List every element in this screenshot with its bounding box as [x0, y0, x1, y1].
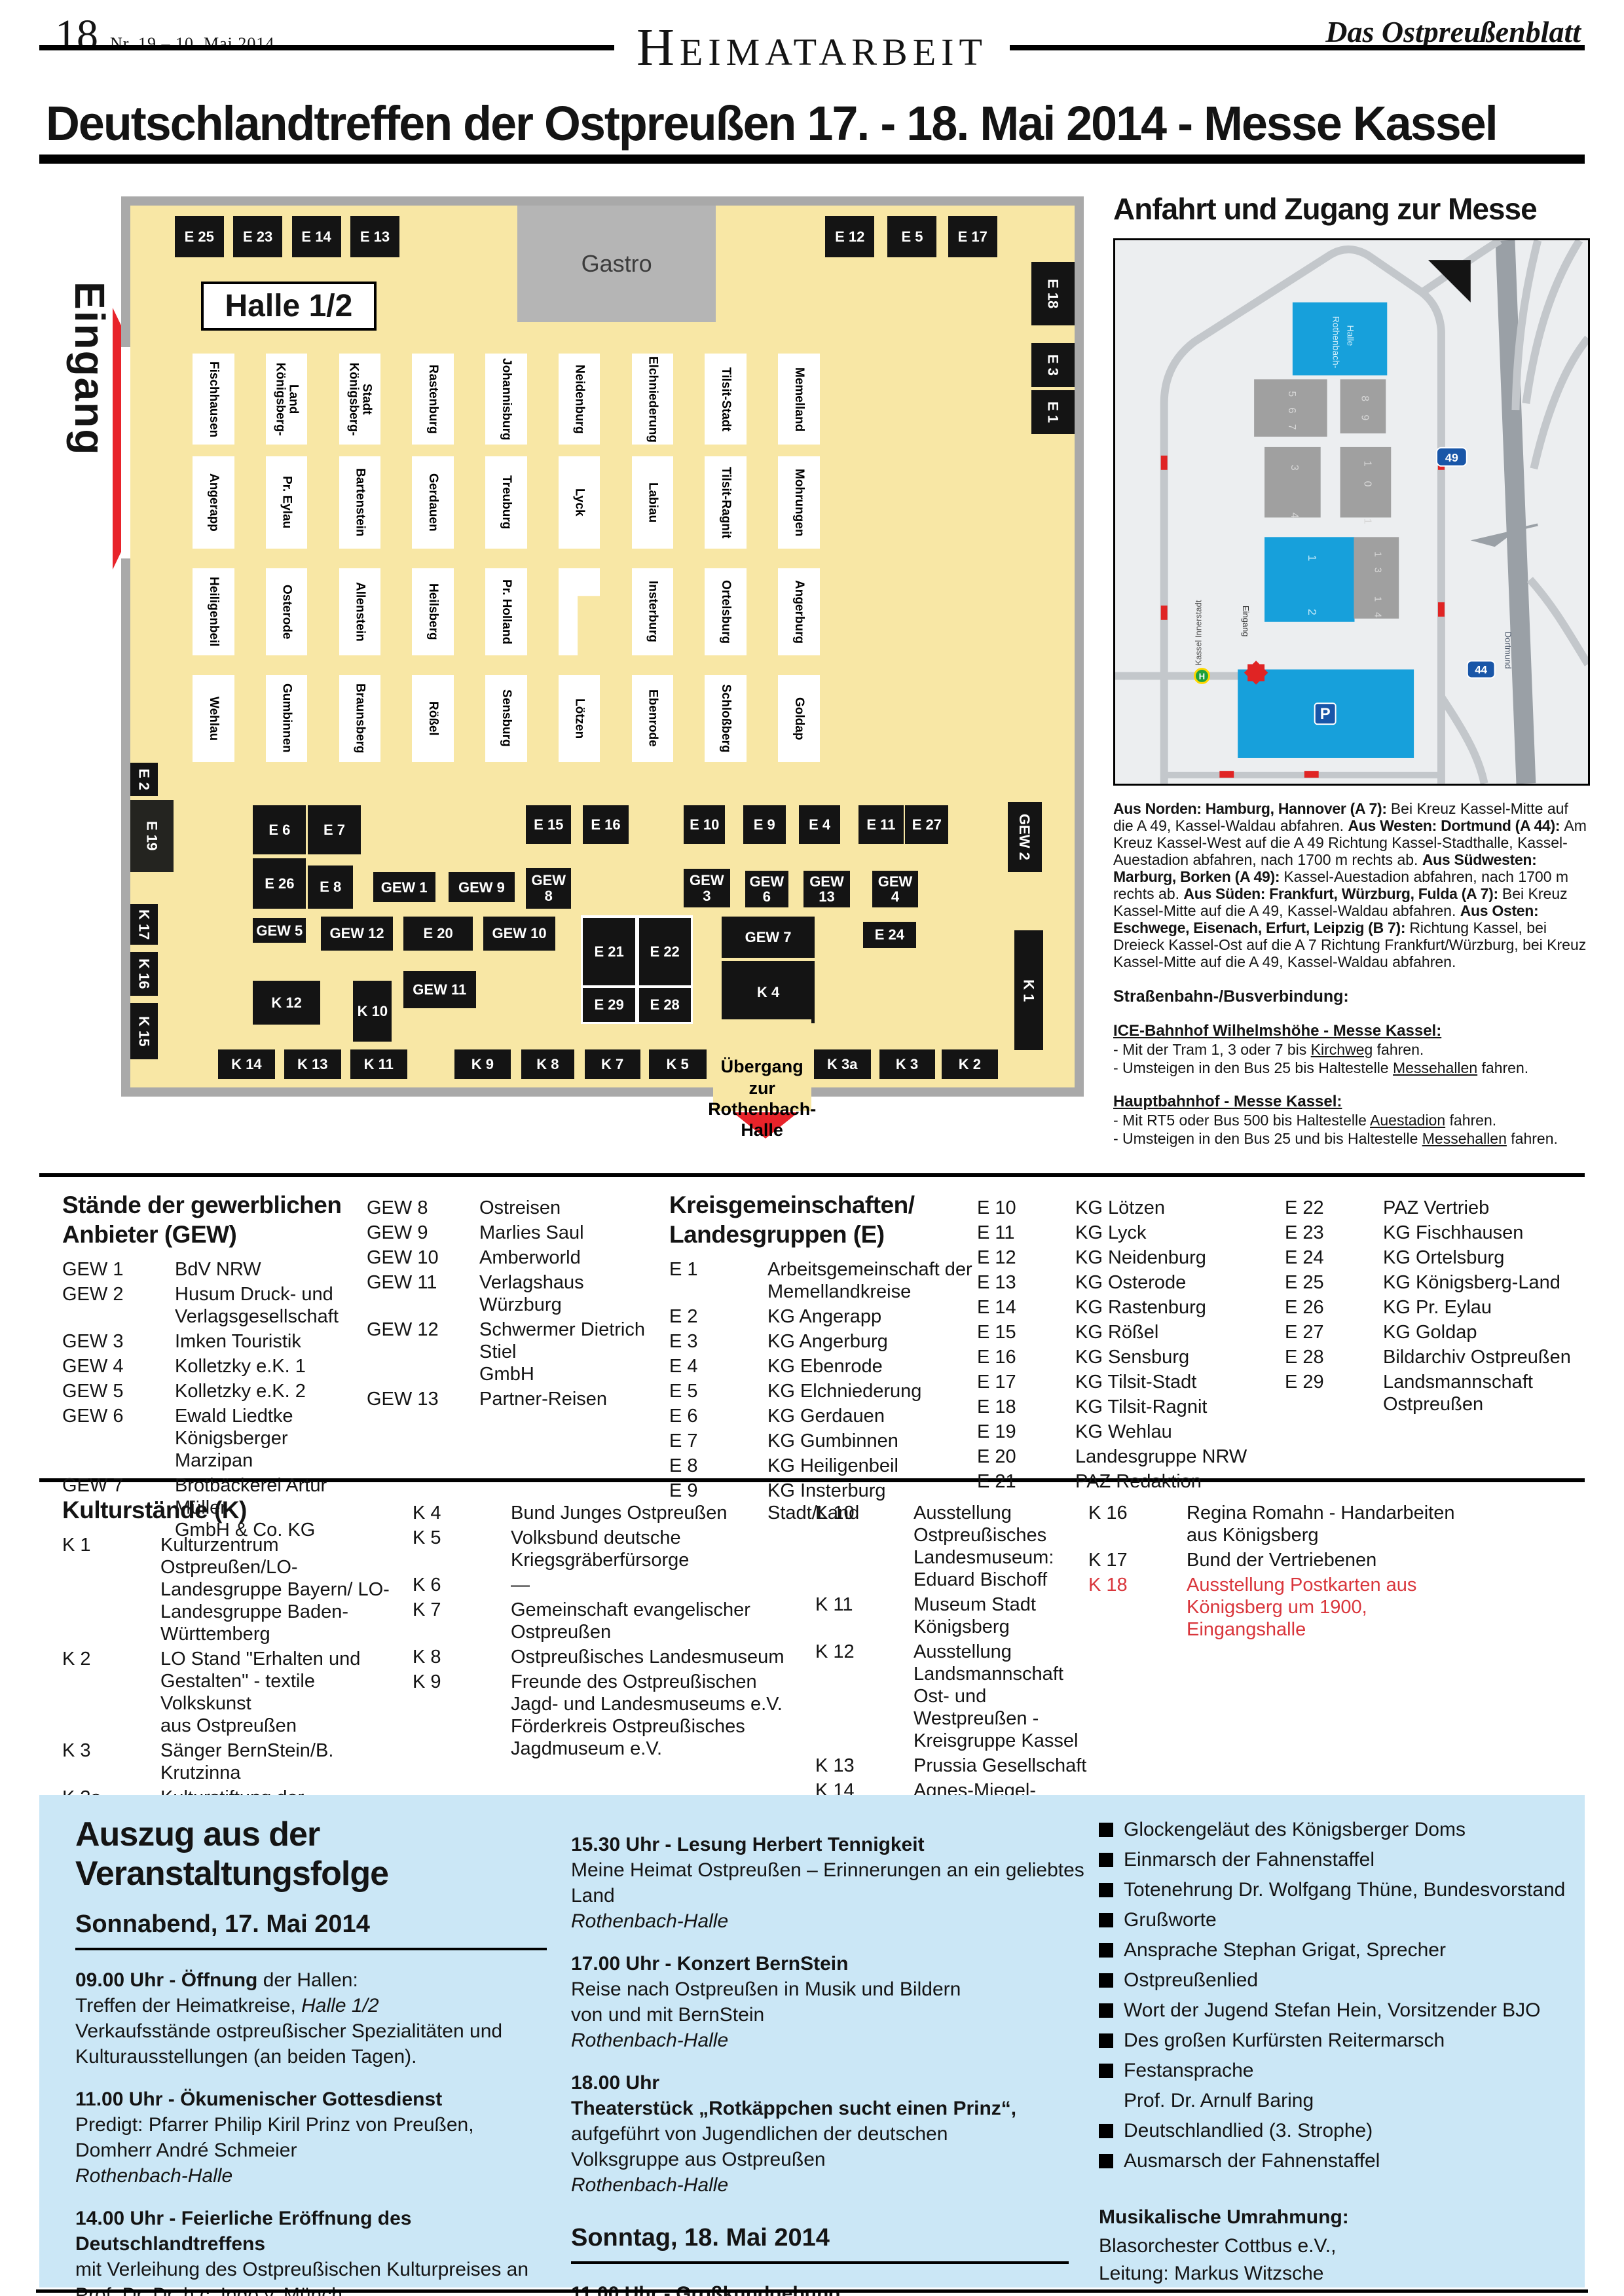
- stand-list-item: E 3KG Angerburg: [669, 1330, 977, 1353]
- program-entry-line: Predigt: Pfarrer Philip Kiril Prinz von …: [75, 2112, 560, 2138]
- program-entry-line: Reise nach Ostpreußen in Musik und Bilde…: [571, 1977, 1088, 2002]
- musical-title: Musikalische Umrahmung:: [1099, 2202, 1570, 2232]
- bullet-text: Festansprache: [1124, 2056, 1253, 2086]
- stand-list-item: E 19KG Wehlau: [977, 1421, 1278, 1443]
- program-entry-line: Rothenbach-Halle: [571, 1908, 1088, 1934]
- stand-code: E 3: [669, 1330, 767, 1353]
- bullet-text: Ansprache Stephan Grigat, Sprecher: [1124, 1935, 1446, 1965]
- map-hall-89-label: 8 9: [1359, 395, 1370, 426]
- stand-name: Imken Touristik: [175, 1330, 301, 1353]
- stand-code: E 20: [977, 1446, 1075, 1468]
- program-title: Auszug aus der Veranstaltungsfolge: [75, 1815, 560, 1893]
- stand-code: E 15: [977, 1321, 1075, 1343]
- map-hall-567-label: 5 6 7: [1286, 391, 1297, 433]
- program-col2: 15.30 Uhr - Lesung Herbert TennigkeitMei…: [571, 1815, 1088, 2296]
- stand-code: E 17: [977, 1371, 1075, 1393]
- district-memelland: Memelland: [778, 354, 819, 445]
- stand-name: KG Ebenrode: [767, 1355, 883, 1377]
- stand-code: GEW 9: [367, 1222, 479, 1244]
- bullet-text: Ostpreußenlied: [1124, 1965, 1258, 1995]
- stand-code: E 16: [977, 1346, 1075, 1368]
- district-heiligenbeil: Heiligenbeil: [193, 568, 234, 655]
- bullet-square-icon: [1099, 1943, 1113, 1958]
- stand-e-28: E 28: [639, 988, 691, 1021]
- district-rößel: Rößel: [412, 675, 453, 762]
- program-bullet: Grußworte: [1099, 1905, 1570, 1935]
- stand-name: Arbeitsgemeinschaft der Memellandkreise: [767, 1258, 972, 1303]
- stand-e-1: E 1: [1031, 390, 1075, 434]
- stand-list-item: GEW 1BdV NRW: [62, 1258, 363, 1281]
- district-pr-eylau: Pr. Eylau: [266, 456, 307, 549]
- stand-name: KG Goldap: [1383, 1321, 1477, 1343]
- map-column: Anfahrt und Zugang zur Messe: [1113, 191, 1590, 1148]
- stand-name: Bund Junges Ostpreußen: [511, 1502, 727, 1524]
- footer-rule: [36, 2289, 1588, 2293]
- musical-line: Leitung: Markus Witzsche: [1099, 2260, 1570, 2287]
- stand-list-item: E 4KG Ebenrode: [669, 1355, 977, 1377]
- district-ortelsburg: Ortelsburg: [705, 568, 746, 655]
- stand-name: Partner-Reisen: [479, 1388, 607, 1410]
- stand-list-item: GEW 4Kolletzky e.K. 1: [62, 1355, 363, 1377]
- district-bartenstein: Bartenstein: [339, 456, 380, 549]
- stand-code: E 12: [977, 1247, 1075, 1269]
- stand-gew-3: GEW 3: [684, 869, 730, 907]
- stand-list-item: E 5KG Elchniederung: [669, 1380, 977, 1402]
- stand-k-9: K 9: [454, 1049, 511, 1078]
- program-entry: 09.00 Uhr - Öffnung der Hallen:Treffen d…: [75, 1967, 560, 2069]
- stand-list-item: GEW 12Schwermer Dietrich Stiel GmbH: [367, 1319, 661, 1385]
- header-rule-left: [39, 45, 614, 50]
- stand-list-item: K 11Museum Stadt Königsberg: [815, 1594, 1090, 1638]
- stand-name: —: [511, 1574, 530, 1596]
- bullet-text: Einmarsch der Fahnenstaffel: [1124, 1845, 1375, 1875]
- stand-gew-4: GEW 4: [872, 871, 917, 908]
- district-pr-holland: Pr. Holland: [485, 568, 526, 655]
- stand-k-12: K 12: [253, 981, 320, 1025]
- program-entry-line: mit Verleihung des Ostpreußischen Kultur…: [75, 2257, 560, 2282]
- program-day2: Sonntag, 18. Mai 2014: [571, 2224, 1088, 2252]
- gew-list-col2: GEW 8OstreisenGEW 9Marlies SaulGEW 10Amb…: [367, 1197, 661, 1413]
- stand-list-item: E 17KG Tilsit-Stadt: [977, 1371, 1278, 1393]
- program-entry-line: von und mit BernStein: [571, 2002, 1088, 2028]
- program-entry-line: 09.00 Uhr - Öffnung der Hallen:: [75, 1967, 560, 1993]
- stand-code: K 5: [413, 1527, 511, 1571]
- stand-name: Ewald Liedtke Königsberger Marzipan: [175, 1405, 363, 1472]
- program-day1-rule: [75, 1948, 547, 1950]
- stand-gew-5: GEW 5: [253, 918, 306, 943]
- district-rastenburg: Rastenburg: [412, 354, 453, 445]
- stand-list-item: K 17Bund der Vertriebenen: [1088, 1549, 1455, 1571]
- stand-list-item: E 11KG Lyck: [977, 1222, 1278, 1244]
- unlabeled-area: [559, 568, 600, 655]
- entrance-label: Eingang: [65, 282, 114, 622]
- program-bullet: Wort der Jugend Stefan Hein, Vorsitzende…: [1099, 1995, 1570, 2026]
- program-entry-line: Rothenbach-Halle: [571, 2172, 1088, 2198]
- district-osterode: Osterode: [266, 568, 307, 655]
- stand-name: KG Lyck: [1075, 1222, 1147, 1244]
- bullet-text: Ausmarsch der Fahnenstaffel: [1124, 2146, 1380, 2176]
- stand-k-1: K 1: [1014, 930, 1044, 1050]
- map-a49-label: 49: [1445, 451, 1458, 464]
- stand-list-item: K 6—: [413, 1574, 786, 1596]
- header-rule-right: [1010, 45, 1585, 50]
- district-wehlau: Wehlau: [193, 675, 234, 762]
- stand-list-item: K 8Ostpreußisches Landesmuseum: [413, 1646, 786, 1668]
- district-allenstein: Allenstein: [339, 568, 380, 655]
- stand-code: K 1: [62, 1534, 160, 1645]
- stand-list-item: E 14KG Rastenburg: [977, 1296, 1278, 1319]
- district-elchniederung: Elchniederung: [632, 354, 673, 445]
- stand-name: KG Osterode: [1075, 1271, 1186, 1294]
- stand-gew-6: GEW 6: [745, 871, 788, 908]
- stand-name: Bildarchiv Ostpreußen: [1383, 1346, 1571, 1368]
- title-rule: [39, 155, 1585, 164]
- bullet-text: Deutschlandlied (3. Strophe): [1124, 2116, 1373, 2146]
- k-list-title: Kulturstände (K): [62, 1495, 390, 1525]
- stand-list-item: K 16Regina Romahn - Handarbeiten aus Kön…: [1088, 1502, 1455, 1546]
- bullet-square-icon: [1099, 2124, 1113, 2138]
- program-col1: Auszug aus der Veranstaltungsfolge Sonna…: [75, 1815, 560, 2296]
- musical-line: Blasorchester Cottbus e.V.,: [1099, 2232, 1570, 2260]
- stand-code: K 17: [1088, 1549, 1187, 1571]
- stand-name: LO Stand "Erhalten und Gestalten" - text…: [160, 1648, 390, 1737]
- stand-e-7: E 7: [308, 805, 361, 854]
- program-entry: 11.00 Uhr - Ökumenischer GottesdienstPre…: [75, 2086, 560, 2189]
- district-angerburg: Angerburg: [778, 568, 819, 655]
- stand-list-item: E 18KG Tilsit-Ragnit: [977, 1396, 1278, 1418]
- stand-name: KG Fischhausen: [1383, 1222, 1523, 1244]
- district-lyck: Lyck: [559, 456, 600, 549]
- stand-code: K 9: [413, 1671, 511, 1760]
- stand-gew-12: GEW 12: [321, 917, 393, 951]
- stand-k-10: K 10: [353, 981, 392, 1042]
- stand-name: KG Neidenburg: [1075, 1247, 1206, 1269]
- stand-name: Marlies Saul: [479, 1222, 584, 1244]
- stand-code: GEW 8: [367, 1197, 479, 1219]
- stand-name: KG Gerdauen: [767, 1405, 885, 1427]
- stand-k-8: K 8: [521, 1049, 574, 1078]
- stand-name: KG Tilsit-Stadt: [1075, 1371, 1196, 1393]
- stand-code: K 6: [413, 1574, 511, 1596]
- stand-e-5: E 5: [887, 216, 936, 257]
- program-entry-line: 11.00 Uhr - Großkundgebung: [571, 2281, 1088, 2296]
- stand-code: GEW 1: [62, 1258, 175, 1281]
- district-goldap: Goldap: [778, 675, 819, 762]
- district-neidenburg: Neidenburg: [559, 354, 600, 445]
- program-entry-line: Kulturausstellungen (an beiden Tagen).: [75, 2044, 560, 2069]
- transit-line: - Mit der Tram 1, 3 oder 7 bis Kirchweg …: [1113, 1040, 1590, 1059]
- stand-name: PAZ Vertrieb: [1383, 1197, 1489, 1219]
- transit-blocks: ICE-Bahnhof Wilhelmshöhe - Messe Kassel:…: [1113, 1006, 1590, 1148]
- stand-list-item: E 1Arbeitsgemeinschaft der Memellandkrei…: [669, 1258, 977, 1303]
- stand-e-13: E 13: [350, 216, 399, 257]
- k-items-col2: K 4Bund Junges OstpreußenK 5Volksbund de…: [413, 1502, 786, 1760]
- stand-list-item: GEW 10Amberworld: [367, 1247, 661, 1269]
- stand-e-2: E 2: [130, 763, 158, 796]
- stand-code: E 27: [1285, 1321, 1383, 1343]
- program-entry-line: Theaterstück „Rotkäppchen sucht einen Pr…: [571, 2096, 1088, 2121]
- stand-e-19: E 19: [130, 800, 174, 872]
- stand-k-4: K 4: [722, 961, 815, 1023]
- stand-k-16: K 16: [130, 952, 158, 996]
- district-lötzen: Lötzen: [559, 675, 600, 762]
- stand-name: Kulturzentrum Ostpreußen/LO- Landesgrupp…: [160, 1534, 390, 1645]
- stand-name: Bund der Vertriebenen: [1187, 1549, 1376, 1571]
- stand-name: KG Wehlau: [1075, 1421, 1172, 1443]
- program-col3: Glockengeläut des Königsberger DomsEinma…: [1099, 1815, 1570, 2287]
- stand-code: E 13: [977, 1271, 1075, 1294]
- stand-k-7: K 7: [585, 1049, 640, 1078]
- section-title: Heimatarbeit: [614, 22, 1010, 74]
- stand-code: GEW 3: [62, 1330, 175, 1353]
- transit-line: - Mit RT5 oder Bus 500 bis Haltestelle A…: [1113, 1111, 1590, 1129]
- program-bullet: Ansprache Stephan Grigat, Sprecher: [1099, 1935, 1570, 1965]
- map-bus-stop-label: H: [1199, 671, 1205, 681]
- stand-code: K 4: [413, 1502, 511, 1524]
- stand-code: K 18: [1088, 1574, 1187, 1641]
- stand-e-24: E 24: [863, 922, 916, 948]
- map-innerstadt-label: Kassel Innerstadt: [1193, 600, 1203, 665]
- stand-k-3a: K 3a: [814, 1049, 871, 1078]
- stand-name: KG Rößel: [1075, 1321, 1158, 1343]
- stand-list-item: GEW 3Imken Touristik: [62, 1330, 363, 1353]
- program-bullet: Einmarsch der Fahnenstaffel: [1099, 1845, 1570, 1875]
- bullet-square-icon: [1099, 2154, 1113, 2168]
- program-entry-line: Rothenbach-Halle: [75, 2163, 560, 2189]
- bullet-subtext: Prof. Dr. Arnulf Baring: [1099, 2086, 1570, 2116]
- stand-list-item: E 23KG Fischhausen: [1285, 1222, 1593, 1244]
- stand-code: K 7: [413, 1599, 511, 1643]
- stand-name: KG Elchniederung: [767, 1380, 921, 1402]
- program-bullet: Des großen Kurfürsten Reitermarsch: [1099, 2026, 1570, 2056]
- header-rule: Heimatarbeit: [39, 26, 1585, 69]
- program-day1-entries: 09.00 Uhr - Öffnung der Hallen:Treffen d…: [75, 1967, 560, 2296]
- program-entry-line: 15.30 Uhr - Lesung Herbert Tennigkeit: [571, 1832, 1088, 1857]
- district-ebenrode: Ebenrode: [632, 675, 673, 762]
- stand-name: Kolletzky e.K. 2: [175, 1380, 306, 1402]
- program-col2-entries: 15.30 Uhr - Lesung Herbert TennigkeitMei…: [571, 1832, 1088, 2198]
- stand-list-item: K 5Volksbund deutsche Kriegsgräberfürsor…: [413, 1527, 786, 1571]
- stand-e-11: E 11: [858, 805, 904, 844]
- bullet-text: Totenehrung Dr. Wolfgang Thüne, Bundesvo…: [1124, 1875, 1565, 1905]
- bullet-square-icon: [1099, 1853, 1113, 1867]
- district-treuburg: Treuburg: [485, 456, 526, 549]
- bullet-text: Wort der Jugend Stefan Hein, Vorsitzende…: [1124, 1995, 1540, 2026]
- stand-name: KG Ortelsburg: [1383, 1247, 1504, 1269]
- stand-code: E 24: [1285, 1247, 1383, 1269]
- stand-gew-8: GEW 8: [526, 868, 571, 909]
- transit-heading: Straßenbahn-/Busverbindung:: [1113, 987, 1590, 1006]
- stand-list-item: E 22PAZ Vertrieb: [1285, 1197, 1593, 1219]
- map-eingang-star-icon: [1244, 661, 1268, 685]
- stand-name: Ostreisen: [479, 1197, 561, 1219]
- stand-list-item: E 6KG Gerdauen: [669, 1405, 977, 1427]
- directions-paragraph: Aus Norden: Hamburg, Hannover (A 7): Bei…: [1113, 800, 1590, 970]
- program-entry-line: Verkaufsstände ostpreußischer Spezialitä…: [75, 2018, 560, 2044]
- e-items-col2: E 10KG LötzenE 11KG LyckE 12KG Neidenbur…: [977, 1197, 1278, 1493]
- stand-list-item: E 7KG Gumbinnen: [669, 1430, 977, 1452]
- bullet-square-icon: [1099, 2064, 1113, 2078]
- stand-e-27: E 27: [905, 805, 948, 844]
- section-rule-1: [39, 1173, 1585, 1177]
- stand-gew-13: GEW 13: [803, 871, 850, 908]
- district-königsberg-land: Königsberg- Land: [266, 354, 307, 445]
- stand-list-item: E 13KG Osterode: [977, 1271, 1278, 1294]
- stand-name: Prussia Gesellschaft: [913, 1755, 1086, 1777]
- stand-code: E 23: [1285, 1222, 1383, 1244]
- stand-code: GEW 6: [62, 1405, 175, 1472]
- stand-gew-11: GEW 11: [403, 971, 476, 1008]
- stand-code: GEW 10: [367, 1247, 479, 1269]
- e-items-col1: E 1Arbeitsgemeinschaft der Memellandkrei…: [669, 1258, 977, 1524]
- map-a44-label: 44: [1475, 663, 1487, 676]
- stand-gew-7: GEW 7: [722, 917, 815, 958]
- stand-name: Ostpreußisches Landesmuseum: [511, 1646, 784, 1668]
- district-johannisburg: Johannisburg: [485, 354, 526, 445]
- map-hall-12-label: 1 2: [1306, 555, 1319, 637]
- bullet-text: Des großen Kurfürsten Reitermarsch: [1124, 2026, 1445, 2056]
- program-entry-line: Rothenbach-Halle: [571, 2028, 1088, 2053]
- program-box: Auszug aus der Veranstaltungsfolge Sonna…: [39, 1795, 1585, 2287]
- stand-k-17: K 17: [130, 904, 158, 945]
- stand-name: Museum Stadt Königsberg: [913, 1594, 1090, 1638]
- program-day2-entries: 11.00 Uhr - Großkundgebung(ab 10.15 Uhr …: [571, 2281, 1088, 2296]
- program-bullet: Festansprache: [1099, 2056, 1570, 2086]
- program-entry-line: Domherr André Schmeier: [75, 2138, 560, 2163]
- stand-code: E 22: [1285, 1197, 1383, 1219]
- stand-code: GEW 13: [367, 1388, 479, 1410]
- map-hall-1314-label: 13 14: [1372, 551, 1383, 628]
- stand-name: KG Lötzen: [1075, 1197, 1165, 1219]
- stand-code: E 7: [669, 1430, 767, 1452]
- stand-code: E 14: [977, 1296, 1075, 1319]
- stand-code: E 11: [977, 1222, 1075, 1244]
- stand-list-item: E 2KG Angerapp: [669, 1305, 977, 1328]
- stand-code: E 29: [1285, 1371, 1383, 1415]
- stand-e-23: E 23: [233, 216, 282, 257]
- district-gerdauen: Gerdauen: [412, 456, 453, 549]
- stand-e-4: E 4: [799, 805, 840, 844]
- stand-k-13: K 13: [284, 1049, 341, 1078]
- district-fischhausen: Fischhausen: [193, 354, 234, 445]
- e-list-title: Kreisgemeinschaften/ Landesgruppen (E): [669, 1190, 977, 1249]
- transit-line: - Umsteigen in den Bus 25 bis Haltestell…: [1113, 1059, 1590, 1077]
- stand-list-item: GEW 13Partner-Reisen: [367, 1388, 661, 1410]
- stand-e-22: E 22: [639, 918, 691, 985]
- stand-gew-2: GEW 2: [1008, 802, 1042, 873]
- stand-list-item: E 27KG Goldap: [1285, 1321, 1593, 1343]
- stand-name: Volksbund deutsche Kriegsgräberfürsorge: [511, 1527, 689, 1571]
- transit-block-title: ICE-Bahnhof Wilhelmshöhe - Messe Kassel:: [1113, 1022, 1590, 1040]
- district-tilsit-ragnit: Tilsit-Ragnit: [705, 456, 746, 549]
- program-entry: 17.00 Uhr - Konzert BernSteinReise nach …: [571, 1951, 1088, 2053]
- e-items-col3: E 22PAZ VertriebE 23KG FischhausenE 24KG…: [1285, 1197, 1593, 1415]
- stand-gew-1: GEW 1: [373, 872, 435, 902]
- page-title: Deutschlandtreffen der Ostpreußen 17. - …: [46, 96, 1497, 151]
- stand-code: E 6: [669, 1405, 767, 1427]
- stand-e-16: E 16: [583, 805, 629, 844]
- stand-name: KG Pr. Eylau: [1383, 1296, 1492, 1319]
- program-entry-line: 17.00 Uhr - Konzert BernStein: [571, 1951, 1088, 1977]
- stand-list-item: E 29Landsmannschaft Ostpreußen: [1285, 1371, 1593, 1415]
- stand-e-8: E 8: [308, 866, 353, 909]
- program-entry: 15.30 Uhr - Lesung Herbert TennigkeitMei…: [571, 1832, 1088, 1934]
- stand-name: Schwermer Dietrich Stiel GmbH: [479, 1319, 661, 1385]
- stand-k-2: K 2: [942, 1049, 999, 1078]
- stand-list-item: GEW 2Husum Druck- und Verlagsgesellschaf…: [62, 1283, 363, 1328]
- stand-list-item: GEW 5Kolletzky e.K. 2: [62, 1380, 363, 1402]
- program-entry-line: Treffen der Heimatkreise, Halle 1/2: [75, 1993, 560, 2018]
- stand-e-18: E 18: [1031, 262, 1075, 325]
- stand-name: Verlagshaus Würzburg: [479, 1271, 661, 1316]
- stand-list-item: E 10KG Lötzen: [977, 1197, 1278, 1219]
- stand-list-item: GEW 6Ewald Liedtke Königsberger Marzipan: [62, 1405, 363, 1472]
- newspaper-page: 18 Nr. 19 – 10. Mai 2014 Das Ostpreußenb…: [0, 0, 1624, 2296]
- stand-code: GEW 5: [62, 1380, 175, 1402]
- stand-code: E 18: [977, 1396, 1075, 1418]
- map-hall-34-label: 3 4: [1289, 465, 1300, 538]
- stand-e-25: E 25: [175, 216, 224, 257]
- gew-items-col2: GEW 8OstreisenGEW 9Marlies SaulGEW 10Amb…: [367, 1197, 661, 1410]
- bullet-square-icon: [1099, 1973, 1113, 1988]
- stand-name: Ausstellung Landsmannschaft Ost- und Wes…: [913, 1641, 1090, 1752]
- program-musical: Musikalische Umrahmung: Blasorchester Co…: [1099, 2202, 1570, 2287]
- program-entry: 11.00 Uhr - Großkundgebung(ab 10.15 Uhr …: [571, 2281, 1088, 2296]
- stand-name: Sänger BernStein/B. Krutzinna: [160, 1740, 390, 1784]
- stand-e-20: E 20: [403, 917, 473, 951]
- stand-code: E 5: [669, 1380, 767, 1402]
- stand-name: KG Sensburg: [1075, 1346, 1189, 1368]
- stand-list-item: K 1Kulturzentrum Ostpreußen/LO- Landesgr…: [62, 1534, 390, 1645]
- stand-e-14: E 14: [292, 216, 341, 257]
- district-mohrungen: Mohrungen: [778, 456, 819, 549]
- program-entry: 14.00 Uhr - Feierliche Eröffnung des Deu…: [75, 2206, 560, 2296]
- stand-code: K 16: [1088, 1502, 1187, 1546]
- bullet-text: Grußworte: [1124, 1905, 1217, 1935]
- stand-code: K 8: [413, 1646, 511, 1668]
- stand-list-item: E 24KG Ortelsburg: [1285, 1247, 1593, 1269]
- district-tilsit-stadt: Tilsit-Stadt: [705, 354, 746, 445]
- stand-code: E 2: [669, 1305, 767, 1328]
- stand-e-3: E 3: [1031, 343, 1075, 387]
- program-entry: 18.00 UhrTheaterstück „Rotkäppchen sucht…: [571, 2070, 1088, 2198]
- program-bullet: Ausmarsch der Fahnenstaffel: [1099, 2146, 1570, 2176]
- e-list-col1: Kreisgemeinschaften/ Landesgruppen (E) E…: [669, 1190, 977, 1527]
- stand-code: GEW 11: [367, 1271, 479, 1316]
- stand-list-item: K 12Ausstellung Landsmannschaft Ost- und…: [815, 1641, 1090, 1752]
- program-entry-line: Volksgruppe aus Ostpreußen: [571, 2147, 1088, 2172]
- stand-e-9: E 9: [743, 805, 786, 844]
- program-day2-rule: [571, 2261, 1069, 2264]
- map-eingang-label: Eingang: [1241, 606, 1251, 636]
- stand-list-item: K 2LO Stand "Erhalten und Gestalten" - t…: [62, 1648, 390, 1737]
- transit-line: - Umsteigen in den Bus 25 und bis Haltes…: [1113, 1129, 1590, 1148]
- e-list-col2: E 10KG LötzenE 11KG LyckE 12KG Neidenbur…: [977, 1197, 1278, 1495]
- district-gumbinnen: Gumbinnen: [266, 675, 307, 762]
- district-königsberg-stadt: Königsberg- Stadt: [339, 354, 380, 445]
- stand-code: K 11: [815, 1594, 913, 1638]
- stand-k-5: K 5: [649, 1049, 707, 1078]
- stand-list-item: K 3Sänger BernStein/B. Krutzinna: [62, 1740, 390, 1784]
- k-list-col4: K 16Regina Romahn - Handarbeiten aus Kön…: [1088, 1502, 1455, 1643]
- stand-list-item: E 16KG Sensburg: [977, 1346, 1278, 1368]
- bullet-square-icon: [1099, 2033, 1113, 2048]
- program-bullet: Glockengeläut des Königsberger Doms: [1099, 1815, 1570, 1845]
- program-bullet: Totenehrung Dr. Wolfgang Thüne, Bundesvo…: [1099, 1875, 1570, 1905]
- district-schloßberg: Schloßberg: [705, 675, 746, 762]
- map-dortmund-label: Dortmund: [1504, 632, 1513, 669]
- stand-code: GEW 12: [367, 1319, 479, 1385]
